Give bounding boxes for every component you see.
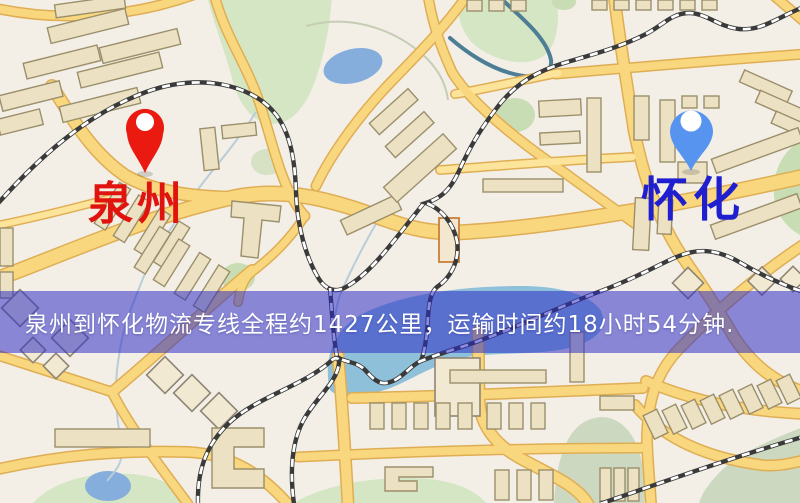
route-info-text: 泉州到怀化物流专线全程约1427公里，运输时间约18小时54分钟. (25, 305, 734, 339)
red-pin-hole (136, 113, 154, 131)
route-map-image: 泉州 怀化 泉州到怀化物流专线全程约1427公里，运输时间约18小时54分钟. (0, 0, 800, 503)
pond-small (85, 471, 131, 501)
pond (320, 42, 386, 90)
origin-pin (126, 109, 164, 177)
map-canvas (0, 0, 800, 503)
route-info-banner: 泉州到怀化物流专线全程约1427公里，运输时间约18小时54分钟. (0, 291, 800, 353)
origin-city-label: 泉州 (88, 181, 186, 226)
destination-city-label: 怀化 (641, 177, 745, 224)
blue-pin-hole (681, 111, 702, 132)
